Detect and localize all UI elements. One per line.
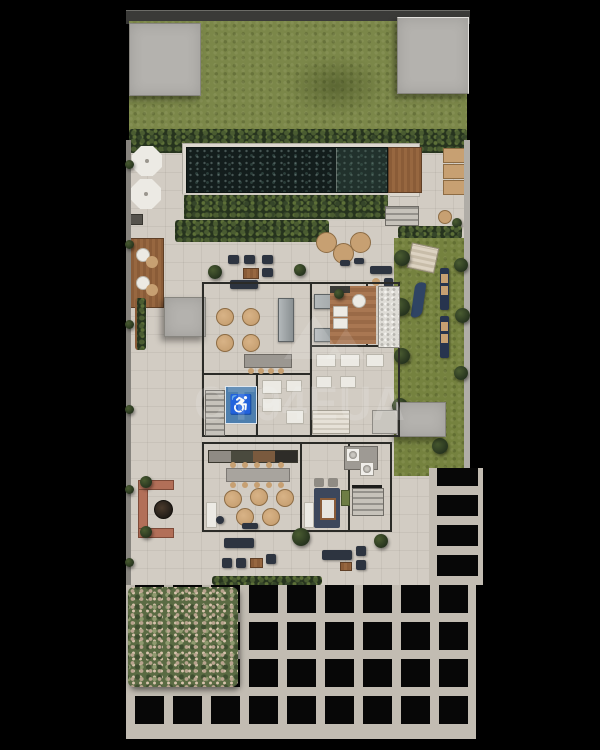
bench bbox=[354, 258, 364, 264]
coffee-table bbox=[250, 558, 263, 568]
armchair-gray bbox=[328, 478, 338, 487]
site-plan: ♿ bbox=[126, 10, 470, 733]
armchair-gray bbox=[314, 478, 324, 487]
edge-plant bbox=[125, 160, 134, 169]
umbrella-pole bbox=[145, 159, 149, 163]
lawn-shade-patch bbox=[286, 55, 386, 117]
pergola-column bbox=[429, 468, 483, 585]
coffee-table bbox=[243, 268, 259, 279]
edge-plant bbox=[125, 320, 134, 329]
terrace-plant bbox=[292, 528, 310, 546]
stairs-pool-terrace bbox=[385, 206, 419, 226]
wall-cabinets bbox=[208, 450, 298, 463]
chair bbox=[242, 462, 248, 468]
wall bbox=[202, 442, 392, 444]
wall bbox=[202, 435, 400, 437]
round-lounger bbox=[146, 256, 158, 268]
gravel-strip bbox=[378, 286, 400, 348]
armchair bbox=[228, 255, 239, 264]
stair-rail bbox=[352, 485, 382, 488]
planter-greenery bbox=[140, 476, 152, 488]
pool-wood-deck bbox=[388, 147, 422, 193]
chair bbox=[266, 462, 272, 468]
swimming-pool bbox=[186, 147, 388, 193]
sofa-white bbox=[304, 502, 314, 528]
hedge-row-bottom bbox=[212, 576, 322, 585]
planter-tree bbox=[294, 264, 306, 276]
round-table bbox=[224, 490, 242, 508]
round-lounger bbox=[146, 284, 158, 296]
coffee-table bbox=[340, 562, 352, 571]
umbrella-white bbox=[131, 179, 161, 209]
chair bbox=[242, 482, 248, 488]
pool-shallow-zone bbox=[336, 148, 387, 192]
lounger-cushion bbox=[441, 334, 448, 343]
armchair bbox=[244, 255, 255, 264]
garden-shrub bbox=[455, 308, 470, 323]
wall bbox=[390, 442, 392, 532]
planter-tree bbox=[208, 265, 222, 279]
chair bbox=[266, 482, 272, 488]
edge-plant bbox=[125, 240, 134, 249]
fire-bowl bbox=[154, 500, 173, 519]
washer bbox=[360, 462, 374, 476]
chair bbox=[278, 482, 284, 488]
site-plan-canvas: ♿ bbox=[0, 0, 600, 750]
pouf bbox=[216, 516, 224, 524]
round-table bbox=[250, 488, 268, 506]
garden-shrub bbox=[394, 250, 410, 266]
chair bbox=[230, 482, 236, 488]
chair bbox=[254, 462, 260, 468]
armchair bbox=[356, 560, 366, 570]
shrub-patch bbox=[128, 587, 238, 687]
stool bbox=[268, 368, 274, 374]
round-table bbox=[242, 308, 260, 326]
stool bbox=[258, 368, 264, 374]
boundary-wall-left bbox=[126, 140, 131, 587]
sofa bbox=[370, 266, 392, 274]
umbrella-tan bbox=[350, 232, 371, 253]
wall bbox=[300, 442, 302, 532]
garden-shrub bbox=[454, 366, 468, 380]
armchair bbox=[266, 554, 276, 564]
wall bbox=[202, 442, 204, 532]
sofa bbox=[322, 550, 352, 560]
potted-plant bbox=[334, 289, 344, 299]
lounger-cushion bbox=[441, 286, 448, 295]
armchair bbox=[262, 268, 273, 277]
chair bbox=[278, 462, 284, 468]
lounger-cushion bbox=[441, 274, 448, 283]
green-cabinet bbox=[341, 490, 350, 506]
round-table bbox=[242, 334, 260, 352]
stool bbox=[248, 368, 254, 374]
long-table bbox=[226, 468, 290, 482]
garden-shrub bbox=[432, 438, 448, 454]
round-table bbox=[262, 508, 280, 526]
armchair bbox=[236, 558, 246, 568]
roof-slab-right bbox=[397, 17, 469, 94]
garden-shrub bbox=[454, 258, 468, 272]
umbrella-pole bbox=[144, 192, 148, 196]
garden-shrub bbox=[394, 348, 410, 364]
watermark-roof-triangle bbox=[326, 328, 366, 359]
roof-slab-left bbox=[129, 23, 201, 96]
chair bbox=[230, 462, 236, 468]
ball-chair bbox=[352, 294, 366, 308]
hedge-row-mid bbox=[175, 220, 329, 242]
washer bbox=[346, 448, 360, 462]
edge-plant bbox=[125, 405, 134, 414]
stool bbox=[278, 368, 284, 374]
watermark-text: CT94EUA bbox=[166, 376, 434, 432]
edge-plant bbox=[125, 485, 134, 494]
round-table bbox=[276, 489, 294, 507]
planter-hedge-long bbox=[182, 193, 390, 221]
round-table bbox=[216, 308, 234, 326]
cafe-chair bbox=[438, 210, 452, 224]
wall bbox=[202, 282, 400, 284]
round-table bbox=[216, 334, 234, 352]
planter-vertical bbox=[135, 298, 146, 350]
service-structure bbox=[164, 297, 206, 337]
pool-table bbox=[320, 498, 336, 520]
planter-greenery bbox=[140, 526, 152, 538]
armchair bbox=[222, 558, 232, 568]
bench bbox=[242, 523, 258, 529]
terrace-plant bbox=[374, 534, 388, 548]
lounger-cushion bbox=[441, 322, 448, 331]
armchair bbox=[356, 546, 366, 556]
sofa bbox=[224, 538, 254, 548]
stairs-hall bbox=[352, 488, 384, 516]
edge-plant bbox=[125, 558, 134, 567]
bench bbox=[340, 260, 350, 266]
garden-canopy bbox=[408, 244, 438, 273]
sideboard bbox=[206, 502, 217, 528]
watermark-logo bbox=[284, 310, 374, 365]
armchair bbox=[262, 255, 273, 264]
side-table bbox=[130, 214, 143, 225]
umbrella-white bbox=[132, 146, 162, 176]
